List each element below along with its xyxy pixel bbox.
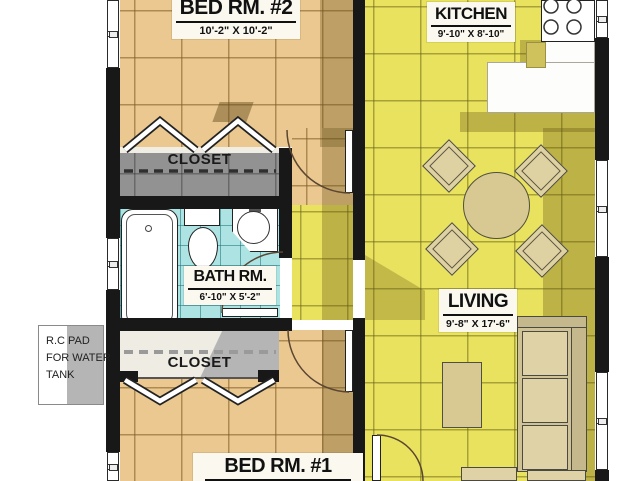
floor-plan: BED RM. #2 10'-2" X 10'-2" KITCHEN 9'-10… bbox=[0, 0, 640, 481]
room-name: KITCHEN bbox=[431, 5, 511, 23]
coffee-table bbox=[442, 362, 482, 428]
label-bed1: BED RM. #1 bbox=[193, 453, 363, 481]
shadow-counter-bottom bbox=[460, 112, 595, 132]
kitchen-appliance bbox=[526, 42, 546, 68]
sofa-arm bbox=[518, 317, 586, 328]
window-living-upper bbox=[596, 160, 608, 257]
sofa-cushion bbox=[522, 331, 568, 376]
window-living-lower bbox=[596, 372, 608, 470]
door-leaf-bed2 bbox=[345, 130, 353, 193]
shadow-bed2-wall bbox=[320, 0, 353, 147]
sofa-cushion bbox=[522, 378, 568, 423]
label-living: LIVING 9'-8" X 17'-6" bbox=[439, 289, 517, 332]
room-name: BED RM. #2 bbox=[176, 0, 296, 19]
bench-cushion bbox=[527, 470, 586, 481]
closet-bottom-track bbox=[120, 377, 279, 379]
sofa-back bbox=[571, 317, 586, 471]
sink-basin bbox=[237, 211, 270, 244]
door-leaf-bath bbox=[222, 308, 278, 317]
wall-left-upper bbox=[106, 68, 120, 238]
pad-line: R.C PAD bbox=[46, 333, 111, 350]
bench-cushion bbox=[461, 467, 517, 481]
pad-text: R.C PAD FOR WATER TANK bbox=[46, 333, 111, 384]
room-dims: 10'-2" X 10'-2" bbox=[176, 21, 296, 37]
pad-line: FOR WATER bbox=[46, 350, 111, 367]
label-bath: BATH RM. 6'-10" X 5'-2" bbox=[184, 266, 276, 305]
kitchen-counter-joint bbox=[544, 63, 594, 112]
label-bed2: BED RM. #2 10'-2" X 10'-2" bbox=[172, 0, 300, 39]
wall-right-lower bbox=[595, 470, 609, 481]
water-tank-pad: R.C PAD FOR WATER TANK bbox=[38, 325, 104, 405]
pad-line: TANK bbox=[46, 367, 111, 384]
room-name: BED RM. #1 bbox=[197, 456, 359, 477]
label-closet-bottom: CLOSET bbox=[120, 354, 279, 371]
wall-stub-closet2-right bbox=[258, 370, 279, 382]
door-leaf-entry bbox=[372, 435, 381, 481]
wall-right-mid bbox=[595, 257, 609, 372]
room-dims: 6'-10" X 5'-2" bbox=[188, 288, 272, 303]
sofa-cushion bbox=[522, 425, 568, 470]
label-closet-top: CLOSET bbox=[120, 151, 279, 168]
label-kitchen: KITCHEN 9'-10" X 8'-10" bbox=[427, 2, 515, 42]
stove bbox=[541, 0, 595, 42]
room-name: LIVING bbox=[443, 292, 513, 312]
sofa bbox=[517, 316, 587, 472]
window-bath bbox=[107, 238, 119, 290]
wall-right-upper bbox=[595, 38, 609, 160]
wall-closet-bath bbox=[106, 196, 292, 209]
door-leaf-bed1 bbox=[345, 330, 353, 392]
dining-table bbox=[463, 172, 530, 239]
room-dims: 9'-10" X 8'-10" bbox=[431, 25, 511, 40]
wall-bath-closet2 bbox=[106, 318, 292, 331]
room-name: BATH RM. bbox=[188, 269, 272, 286]
room-dims: 9'-8" X 17'-6" bbox=[443, 314, 513, 330]
bathtub-drain bbox=[145, 225, 152, 232]
window-bed1 bbox=[107, 452, 119, 481]
wall-stub-closet2-left bbox=[118, 371, 138, 382]
shadow-bed2-object bbox=[212, 102, 253, 122]
window-kitchen bbox=[596, 0, 608, 38]
wall-bed2-kitchen bbox=[353, 0, 365, 260]
bathtub bbox=[121, 209, 178, 328]
window-bed2 bbox=[107, 0, 119, 68]
toilet-tank bbox=[184, 208, 220, 226]
